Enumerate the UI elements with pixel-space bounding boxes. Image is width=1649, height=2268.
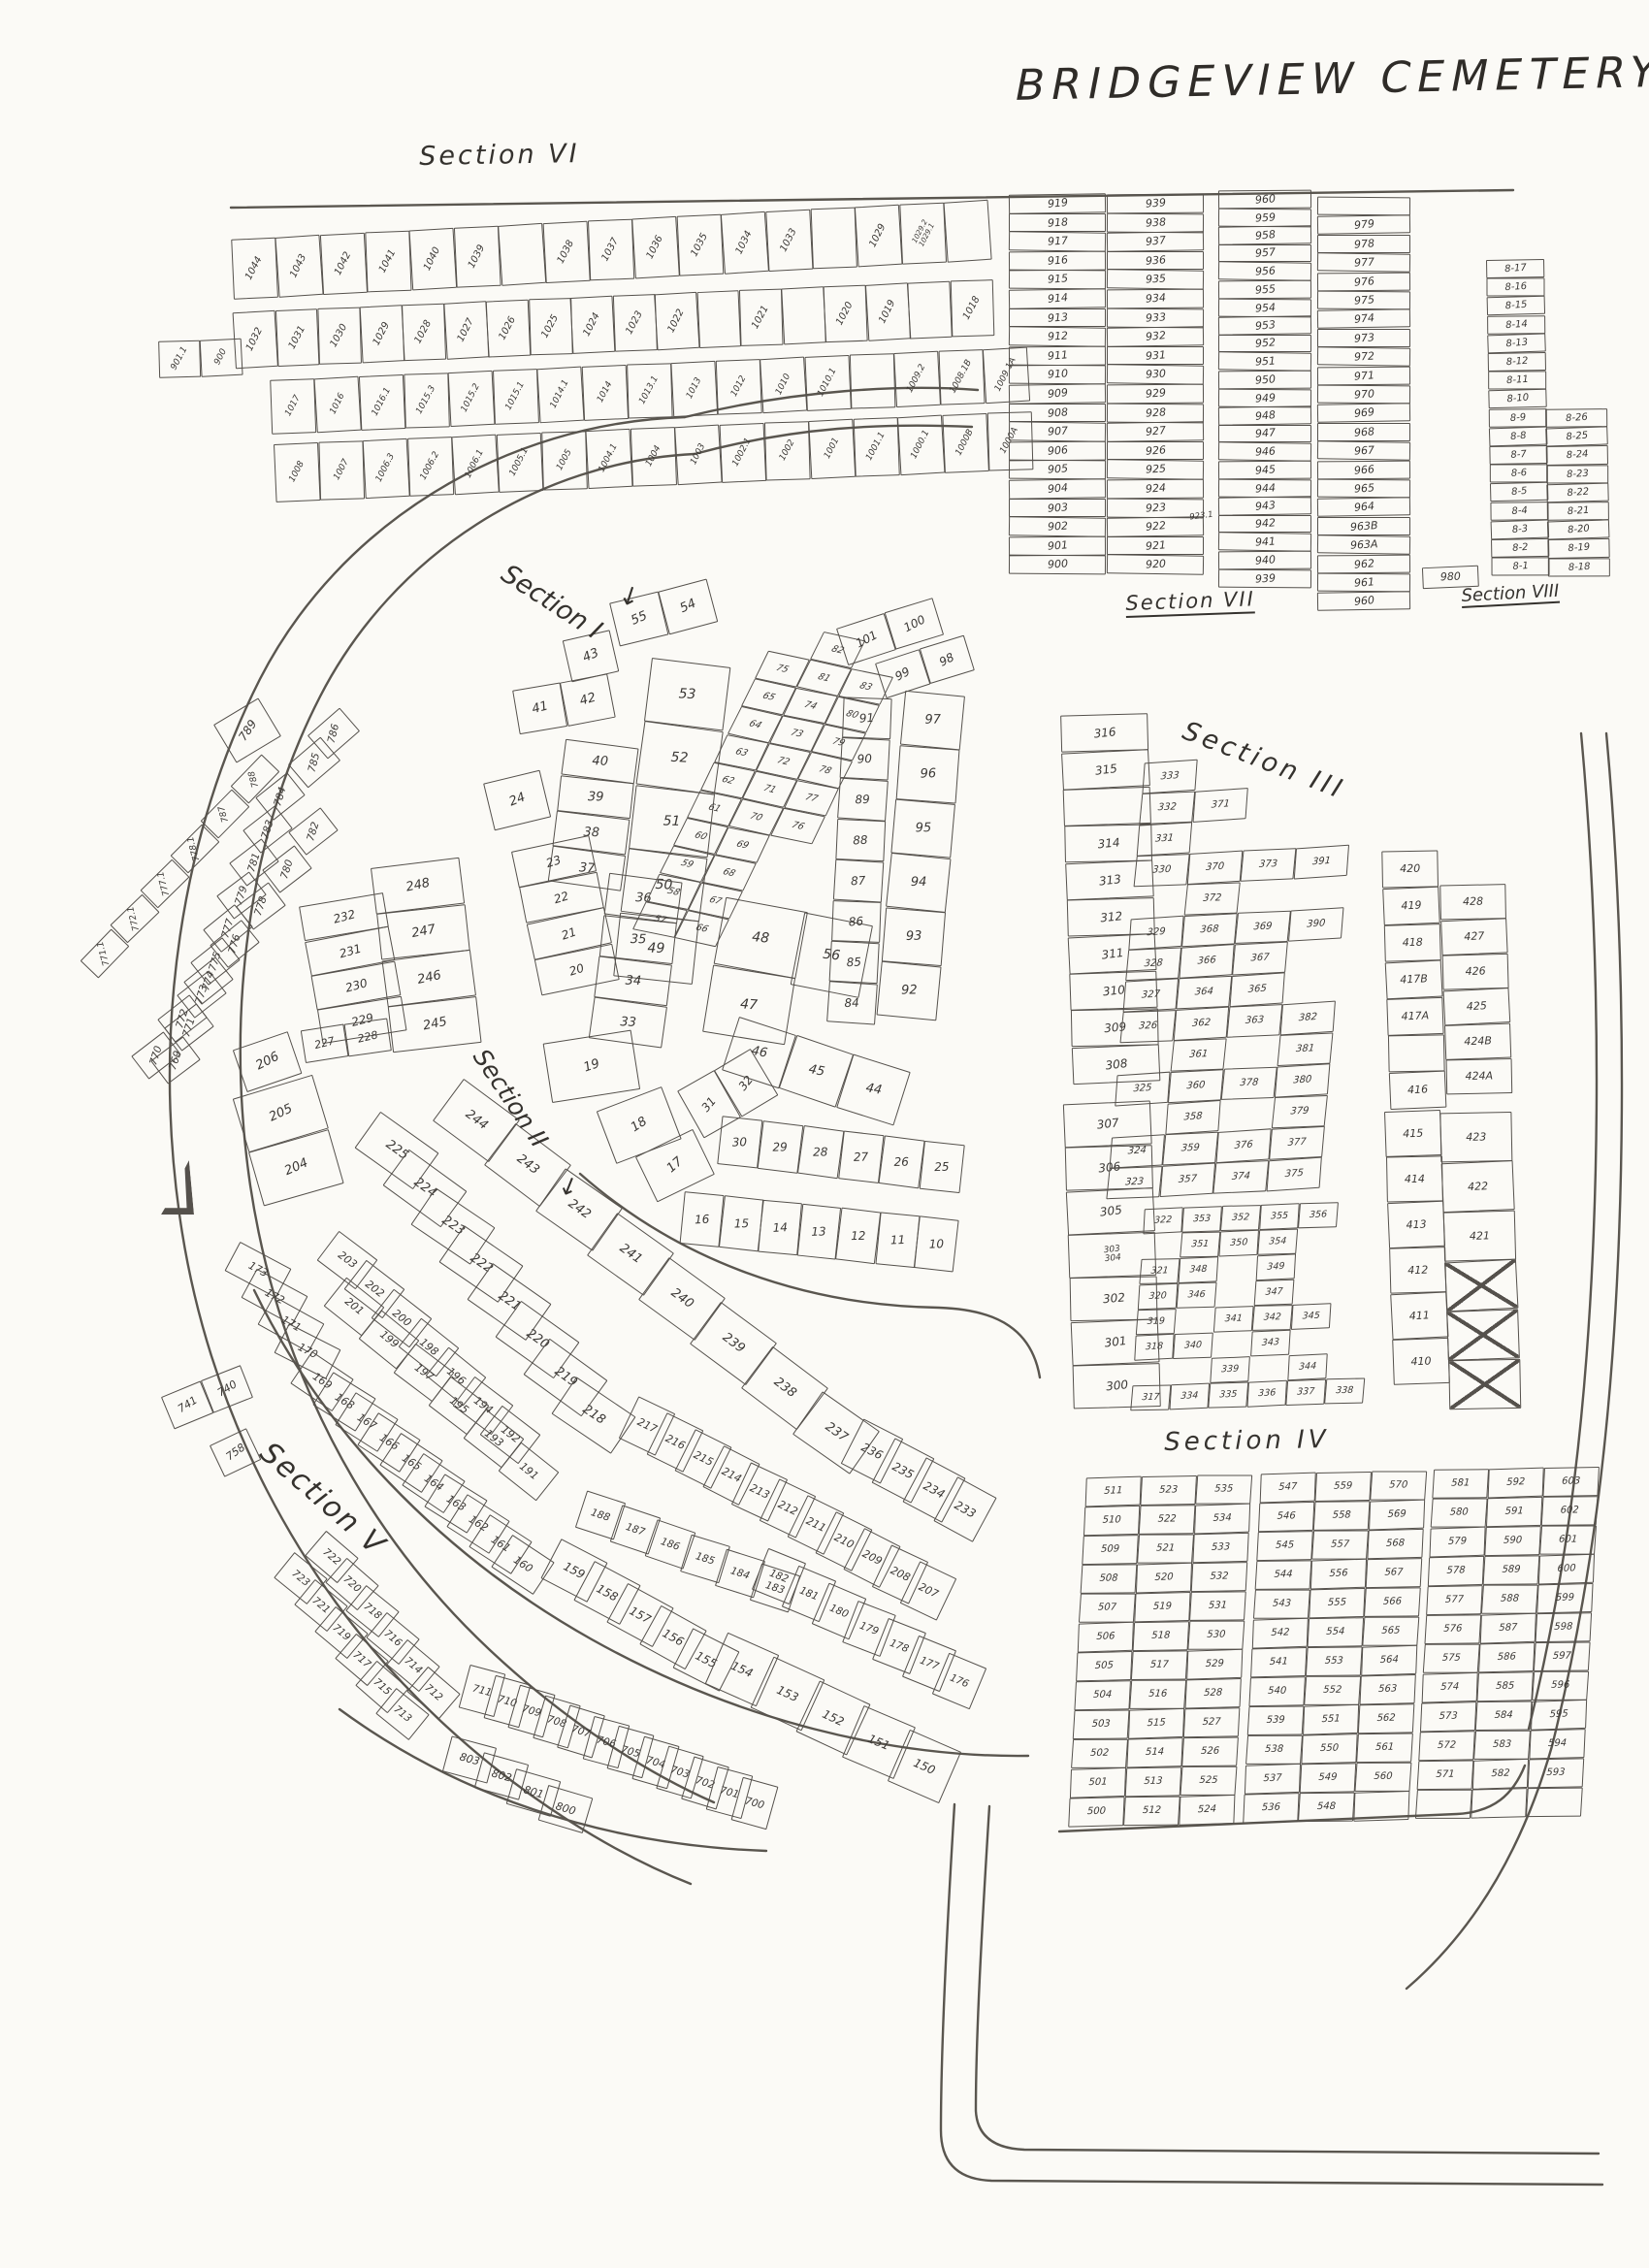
plot-543: 543 xyxy=(1253,1590,1310,1619)
plot-958: 958 xyxy=(1218,225,1311,244)
plot-514: 514 xyxy=(1126,1737,1182,1767)
plot-327: 327 xyxy=(1123,978,1180,1012)
plot-338: 338 xyxy=(1324,1377,1365,1404)
plot-555: 555 xyxy=(1309,1588,1365,1618)
plot-8-6: 8-6 xyxy=(1490,465,1548,483)
plot-368: 368 xyxy=(1181,913,1238,947)
plot-552: 552 xyxy=(1304,1676,1361,1705)
plot-326: 326 xyxy=(1119,1010,1176,1043)
plot-374: 374 xyxy=(1212,1160,1269,1194)
plot-568: 568 xyxy=(1367,1529,1423,1559)
plot-527: 527 xyxy=(1183,1707,1241,1737)
plot-541: 541 xyxy=(1250,1647,1307,1677)
plot-907: 907 xyxy=(1009,421,1106,441)
plot-1030: 1030 xyxy=(317,308,361,365)
empty-plot xyxy=(944,200,992,263)
plot-367: 367 xyxy=(1232,942,1288,976)
plot-88: 88 xyxy=(835,819,886,861)
plot-92: 92 xyxy=(877,961,942,1021)
plot-1006.1: 1006.1 xyxy=(451,435,499,496)
plot-227: 227 xyxy=(301,1023,349,1063)
plot-1006.2: 1006.2 xyxy=(407,437,454,497)
plot-332: 332 xyxy=(1139,792,1195,826)
plot-510: 510 xyxy=(1083,1506,1140,1536)
plot-427: 427 xyxy=(1440,918,1507,956)
plot-1040: 1040 xyxy=(409,228,458,291)
plot-360: 360 xyxy=(1168,1069,1224,1103)
plot-8-2: 8-2 xyxy=(1491,538,1549,558)
plot-1006.3: 1006.3 xyxy=(363,438,410,499)
plot-343: 343 xyxy=(1250,1330,1291,1357)
plot-928: 928 xyxy=(1107,403,1204,422)
plot-420: 420 xyxy=(1381,850,1439,888)
plot-1004: 1004 xyxy=(630,427,677,487)
empty-plot xyxy=(1471,1788,1527,1818)
empty-plot xyxy=(1353,1791,1409,1822)
plot-11: 11 xyxy=(875,1212,920,1268)
plot-8-15: 8-15 xyxy=(1487,296,1545,316)
plot-85: 85 xyxy=(829,941,880,985)
plot-349: 349 xyxy=(1256,1253,1296,1280)
plot-47: 47 xyxy=(702,965,795,1046)
section-label-vii: Section VII xyxy=(1125,587,1255,618)
empty-plot xyxy=(1446,1309,1520,1361)
plot-952: 952 xyxy=(1218,335,1311,353)
plot-16: 16 xyxy=(680,1191,725,1247)
plot-508: 508 xyxy=(1081,1564,1138,1594)
plot-582: 582 xyxy=(1472,1759,1529,1790)
plot-960: 960 xyxy=(1317,592,1410,612)
plot-412: 412 xyxy=(1389,1247,1446,1294)
plot-390: 390 xyxy=(1288,907,1344,941)
plot-373: 373 xyxy=(1240,848,1296,882)
plot-1044: 1044 xyxy=(231,238,278,300)
plot-588: 588 xyxy=(1481,1585,1538,1614)
plot-1043: 1043 xyxy=(275,235,323,298)
plot-1002.1: 1002.1 xyxy=(720,423,767,483)
plot-8-10: 8-10 xyxy=(1488,389,1546,409)
empty-plot xyxy=(811,208,857,270)
plot-901.1: 901.1 xyxy=(158,340,201,378)
plot-8-23: 8-23 xyxy=(1546,465,1608,483)
plot-506: 506 xyxy=(1078,1622,1134,1653)
plot-945: 945 xyxy=(1218,461,1311,479)
plot-1005.1: 1005.1 xyxy=(497,433,544,493)
plot-581: 581 xyxy=(1432,1469,1489,1499)
plot-8-1: 8-1 xyxy=(1492,558,1550,576)
plot-1029: 1029 xyxy=(855,205,903,268)
plot-358: 358 xyxy=(1165,1100,1220,1135)
plot-502: 502 xyxy=(1071,1739,1128,1768)
plot-1020: 1020 xyxy=(824,285,868,343)
plot-417B: 417B xyxy=(1385,959,1443,999)
plot-322: 322 xyxy=(1143,1207,1182,1234)
plot-600: 600 xyxy=(1538,1554,1595,1585)
plot-949: 949 xyxy=(1218,388,1311,406)
plot-418: 418 xyxy=(1384,923,1441,962)
plot-559: 559 xyxy=(1314,1472,1372,1502)
plot-1035: 1035 xyxy=(677,214,725,276)
plot-596: 596 xyxy=(1532,1671,1589,1701)
plot-966: 966 xyxy=(1317,460,1410,479)
plot-951: 951 xyxy=(1218,352,1311,372)
plot-425: 425 xyxy=(1443,988,1511,1025)
plot-503: 503 xyxy=(1073,1709,1130,1739)
plot-415: 415 xyxy=(1384,1110,1442,1157)
plot-926: 926 xyxy=(1107,441,1204,461)
plot-567: 567 xyxy=(1366,1558,1423,1588)
plot-87: 87 xyxy=(833,859,884,903)
plot-529: 529 xyxy=(1186,1649,1243,1680)
plot-560: 560 xyxy=(1354,1763,1411,1792)
plot-603: 603 xyxy=(1542,1467,1600,1497)
plot-550: 550 xyxy=(1301,1733,1357,1764)
plot-1009.2: 1009.2 xyxy=(893,351,941,407)
plot-1036: 1036 xyxy=(631,216,680,279)
plot-1005: 1005 xyxy=(541,431,588,490)
plot-940: 940 xyxy=(1218,551,1311,569)
plot-500: 500 xyxy=(1068,1797,1124,1827)
plot-902: 902 xyxy=(1009,516,1106,536)
plot-376: 376 xyxy=(1215,1128,1271,1163)
plot-359: 359 xyxy=(1162,1132,1218,1166)
plot-1029: 1029 xyxy=(359,305,404,363)
plot-381: 381 xyxy=(1277,1032,1334,1066)
plot-25: 25 xyxy=(920,1141,965,1193)
plot-521: 521 xyxy=(1137,1535,1194,1564)
plot-416: 416 xyxy=(1389,1071,1447,1110)
plot-8-14: 8-14 xyxy=(1487,315,1545,335)
plot-334: 334 xyxy=(1169,1383,1210,1410)
plot-8-12: 8-12 xyxy=(1488,352,1546,372)
plot-340: 340 xyxy=(1173,1333,1213,1359)
plot-971: 971 xyxy=(1317,366,1410,385)
plot-954: 954 xyxy=(1218,298,1311,316)
plot-530: 530 xyxy=(1187,1621,1245,1650)
plot-1008.1B: 1008.1B xyxy=(939,349,986,405)
section-label-iv: Section IV xyxy=(1164,1425,1330,1457)
plot-956: 956 xyxy=(1218,262,1311,281)
plot-516: 516 xyxy=(1129,1680,1186,1709)
plot-523: 523 xyxy=(1140,1475,1197,1506)
plot-557: 557 xyxy=(1311,1531,1369,1560)
plot-14: 14 xyxy=(758,1200,801,1255)
plot-941: 941 xyxy=(1218,533,1311,552)
plot-975: 975 xyxy=(1317,291,1410,310)
plot-90: 90 xyxy=(840,737,890,781)
plot-321: 321 xyxy=(1139,1258,1180,1284)
plot-933: 933 xyxy=(1107,308,1204,327)
plot-361: 361 xyxy=(1171,1038,1227,1071)
plot-589: 589 xyxy=(1483,1555,1540,1585)
plot-8-17: 8-17 xyxy=(1486,259,1544,278)
plot-938: 938 xyxy=(1107,212,1204,232)
plot-515: 515 xyxy=(1128,1708,1184,1739)
plot-960: 960 xyxy=(1218,190,1311,209)
plot-910: 910 xyxy=(1009,365,1106,384)
plot-1021: 1021 xyxy=(739,289,783,346)
plot-315: 315 xyxy=(1061,749,1150,791)
plot-411: 411 xyxy=(1390,1291,1448,1340)
plot-377: 377 xyxy=(1269,1126,1325,1160)
plot-323: 323 xyxy=(1106,1166,1162,1199)
plot-576: 576 xyxy=(1424,1614,1481,1644)
plot-590: 590 xyxy=(1484,1526,1541,1556)
plot-1013.1: 1013.1 xyxy=(627,363,673,418)
plot-969: 969 xyxy=(1317,404,1410,424)
plot-976: 976 xyxy=(1317,272,1410,291)
plot-595: 595 xyxy=(1531,1700,1587,1731)
empty-plot xyxy=(1063,787,1151,826)
plot-939: 939 xyxy=(1107,194,1204,213)
plot-365: 365 xyxy=(1230,972,1285,1007)
plot-553: 553 xyxy=(1306,1646,1363,1676)
plot-424B: 424B xyxy=(1444,1023,1511,1060)
plot-8-9: 8-9 xyxy=(1489,408,1547,428)
plot-1004.1: 1004.1 xyxy=(585,429,632,489)
plot-371: 371 xyxy=(1193,788,1248,823)
plot-512: 512 xyxy=(1123,1797,1180,1827)
plot-413: 413 xyxy=(1387,1201,1445,1248)
plot-356: 356 xyxy=(1298,1202,1339,1228)
plot-1016: 1016 xyxy=(314,376,362,434)
plot-900: 900 xyxy=(200,339,243,377)
plot-1001.1: 1001.1 xyxy=(854,417,900,477)
plot-1024: 1024 xyxy=(569,296,614,354)
plot-1037: 1037 xyxy=(588,219,634,281)
plot-925: 925 xyxy=(1107,460,1204,480)
plot-518: 518 xyxy=(1133,1621,1190,1651)
plot-331: 331 xyxy=(1137,822,1193,856)
plot-1022: 1022 xyxy=(654,292,699,350)
plot-8-20: 8-20 xyxy=(1547,520,1610,540)
plot-900: 900 xyxy=(1009,555,1106,574)
plot-357: 357 xyxy=(1160,1163,1216,1197)
plot-336: 336 xyxy=(1247,1380,1287,1408)
plot-542: 542 xyxy=(1252,1618,1309,1649)
plot-1003: 1003 xyxy=(674,425,722,486)
plot-426: 426 xyxy=(1442,954,1509,990)
plot-324: 324 xyxy=(1109,1134,1165,1168)
plot-535: 535 xyxy=(1195,1474,1252,1504)
plot-534: 534 xyxy=(1194,1504,1250,1535)
plot-345: 345 xyxy=(1291,1303,1332,1330)
plot-965: 965 xyxy=(1317,479,1410,499)
plot-86: 86 xyxy=(831,900,882,943)
plot-1027: 1027 xyxy=(443,301,489,359)
plot-968: 968 xyxy=(1317,423,1410,441)
plot-602: 602 xyxy=(1541,1496,1599,1526)
plot-8-4: 8-4 xyxy=(1490,502,1548,521)
plot-904: 904 xyxy=(1009,478,1106,499)
plot-524: 524 xyxy=(1179,1795,1235,1826)
plot-1033: 1033 xyxy=(765,210,813,272)
plot-84: 84 xyxy=(826,981,878,1024)
plot-353: 353 xyxy=(1181,1206,1222,1232)
plot-594: 594 xyxy=(1529,1729,1585,1759)
plot-513: 513 xyxy=(1125,1766,1182,1797)
plot-556: 556 xyxy=(1310,1559,1367,1590)
plot-946: 946 xyxy=(1218,442,1311,462)
plot-337: 337 xyxy=(1285,1379,1326,1406)
plot-947: 947 xyxy=(1218,425,1311,443)
plot-42: 42 xyxy=(560,673,616,727)
plot-13: 13 xyxy=(796,1204,841,1260)
plot-8-5: 8-5 xyxy=(1490,482,1548,502)
plot-97: 97 xyxy=(900,691,965,751)
plot-8-22: 8-22 xyxy=(1546,482,1608,502)
plot-937: 937 xyxy=(1107,231,1204,251)
plot-967: 967 xyxy=(1317,440,1410,461)
plot-330: 330 xyxy=(1134,854,1190,887)
plot-569: 569 xyxy=(1369,1500,1425,1531)
plot-914: 914 xyxy=(1009,288,1106,308)
plot-8-8: 8-8 xyxy=(1489,426,1548,446)
plot-972: 972 xyxy=(1317,346,1410,367)
plot-1013: 1013 xyxy=(670,361,718,417)
plot-375: 375 xyxy=(1267,1157,1322,1192)
plot-564: 564 xyxy=(1361,1645,1417,1676)
plot-1026: 1026 xyxy=(486,300,531,358)
plot-943: 943 xyxy=(1218,496,1311,515)
plot-573: 573 xyxy=(1420,1701,1476,1732)
plot-546: 546 xyxy=(1258,1502,1314,1532)
plot-320: 320 xyxy=(1138,1283,1179,1311)
plot-366: 366 xyxy=(1179,944,1234,979)
plot-916: 916 xyxy=(1009,250,1106,270)
plot-593: 593 xyxy=(1528,1758,1585,1788)
plot-906: 906 xyxy=(1009,440,1106,460)
plot-362: 362 xyxy=(1174,1007,1230,1041)
plot-91: 91 xyxy=(842,697,892,739)
plot-370: 370 xyxy=(1187,851,1244,885)
plot-28: 28 xyxy=(797,1125,844,1179)
plot-579: 579 xyxy=(1429,1527,1485,1558)
plot-346: 346 xyxy=(1177,1282,1217,1309)
plot-378: 378 xyxy=(1221,1067,1277,1100)
plot-961: 961 xyxy=(1317,573,1410,593)
plot-342: 342 xyxy=(1252,1305,1293,1331)
empty-plot xyxy=(1448,1359,1521,1409)
plot-532: 532 xyxy=(1191,1562,1248,1592)
plot-1014: 1014 xyxy=(582,365,629,421)
plot-428: 428 xyxy=(1439,884,1506,920)
plot-1012: 1012 xyxy=(716,359,762,415)
plot-8-25: 8-25 xyxy=(1545,427,1608,447)
plot-350: 350 xyxy=(1218,1230,1259,1257)
plot-382: 382 xyxy=(1280,1001,1336,1036)
plot-962: 962 xyxy=(1317,554,1410,573)
plot-908: 908 xyxy=(1009,404,1106,423)
plot-329: 329 xyxy=(1128,916,1183,951)
plot-525: 525 xyxy=(1180,1766,1237,1796)
plot-341: 341 xyxy=(1213,1306,1254,1332)
plot-584: 584 xyxy=(1475,1701,1533,1731)
plot-8-13: 8-13 xyxy=(1487,333,1546,353)
plot-41: 41 xyxy=(512,682,567,734)
plot-517: 517 xyxy=(1131,1650,1188,1680)
plot-421: 421 xyxy=(1443,1211,1516,1262)
plot-1028: 1028 xyxy=(402,304,446,362)
plot-977: 977 xyxy=(1317,252,1410,273)
plot-544: 544 xyxy=(1255,1560,1312,1590)
plot-423: 423 xyxy=(1439,1112,1512,1162)
plot-344: 344 xyxy=(1287,1353,1327,1380)
plot-547: 547 xyxy=(1260,1473,1316,1504)
plot-934: 934 xyxy=(1107,289,1204,308)
plot-921: 921 xyxy=(1107,536,1204,556)
plot-352: 352 xyxy=(1220,1205,1261,1231)
plot-10: 10 xyxy=(914,1215,958,1272)
plot-909: 909 xyxy=(1009,383,1106,404)
plot-319: 319 xyxy=(1136,1309,1177,1335)
plot-419: 419 xyxy=(1382,887,1440,925)
plot-959: 959 xyxy=(1218,208,1311,226)
plot-601: 601 xyxy=(1539,1526,1597,1555)
plot-89: 89 xyxy=(837,778,889,822)
plot-354: 354 xyxy=(1257,1229,1298,1255)
empty-plot xyxy=(498,223,546,286)
plot-1014.1: 1014.1 xyxy=(536,367,584,424)
plot-931: 931 xyxy=(1107,346,1204,366)
plot-422: 422 xyxy=(1441,1160,1515,1213)
plot-1019: 1019 xyxy=(864,282,910,340)
plot-8-26: 8-26 xyxy=(1545,408,1607,428)
plot-94: 94 xyxy=(886,853,951,913)
plot-1015.2: 1015.2 xyxy=(448,371,496,427)
plot-1000B: 1000B xyxy=(942,413,989,473)
plot-583: 583 xyxy=(1473,1731,1531,1760)
empty-plot xyxy=(1388,1034,1445,1072)
plot-918: 918 xyxy=(1009,213,1106,233)
plot-970: 970 xyxy=(1317,385,1410,405)
section-label-vi: Section VI xyxy=(419,139,580,172)
plot-539: 539 xyxy=(1247,1705,1305,1735)
plot-548: 548 xyxy=(1298,1793,1355,1823)
plot-903: 903 xyxy=(1009,499,1106,518)
plot-96: 96 xyxy=(896,745,960,803)
empty-plot xyxy=(1415,1790,1472,1819)
plot-8-24: 8-24 xyxy=(1546,445,1608,465)
plot-1031: 1031 xyxy=(275,308,319,367)
plot-540: 540 xyxy=(1248,1676,1306,1706)
plot-572: 572 xyxy=(1418,1731,1475,1761)
plot-520: 520 xyxy=(1136,1563,1192,1594)
plot-325: 325 xyxy=(1115,1072,1170,1107)
plot-29: 29 xyxy=(758,1120,804,1174)
plot-505: 505 xyxy=(1076,1651,1132,1681)
plot-1015.3: 1015.3 xyxy=(404,373,450,428)
plot-549: 549 xyxy=(1300,1763,1357,1793)
plot-538: 538 xyxy=(1245,1735,1303,1765)
plot-936: 936 xyxy=(1107,251,1204,271)
plot-917: 917 xyxy=(1009,231,1106,251)
empty-plot xyxy=(696,290,741,348)
plot-1023: 1023 xyxy=(612,294,657,352)
plot-511: 511 xyxy=(1085,1476,1142,1507)
plot-1002: 1002 xyxy=(764,421,811,480)
plot-570: 570 xyxy=(1370,1471,1427,1500)
plot-591: 591 xyxy=(1486,1497,1542,1527)
plot-913: 913 xyxy=(1009,308,1106,328)
plot-1010.1: 1010.1 xyxy=(804,355,851,411)
plot-964: 964 xyxy=(1317,498,1410,518)
plot-1029.2-1029.1: 1029.21029.1 xyxy=(899,203,947,265)
plot-901: 901 xyxy=(1009,535,1106,555)
plot-364: 364 xyxy=(1176,976,1232,1010)
plot-563: 563 xyxy=(1359,1674,1415,1704)
plot-580: 580 xyxy=(1431,1498,1488,1527)
